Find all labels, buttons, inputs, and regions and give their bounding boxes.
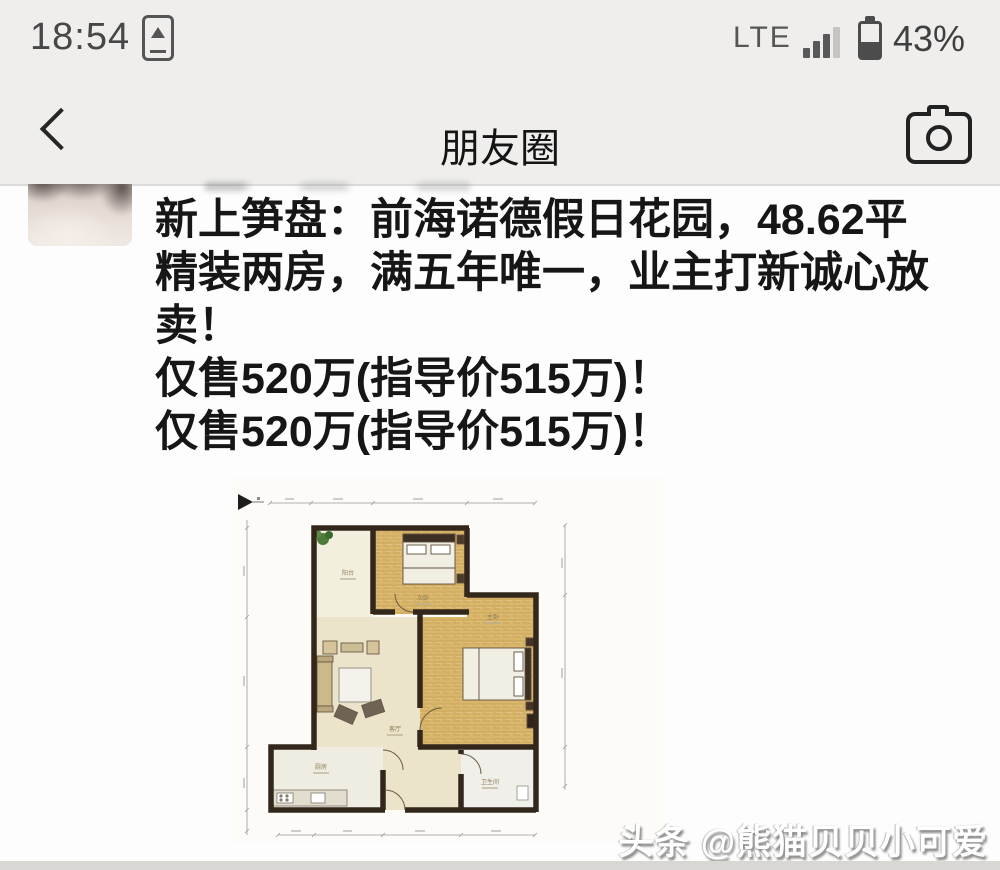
page-title: 朋友圈 <box>0 116 1000 174</box>
room-label-bathroom: 卫生间 <box>481 778 499 786</box>
bathroom-fixture <box>517 786 528 800</box>
north-arrow-icon <box>238 494 264 510</box>
screen-capture-icon <box>142 15 174 61</box>
wechat-moments-screenshot: 18:54 LTE 43% 朋友圈 新上笋盘：前海诺德假日花园，48.62平 精… <box>0 0 1000 870</box>
status-time: 18:54 <box>30 16 130 59</box>
icon-base-line <box>150 50 166 53</box>
post-text-line: 精装两房，满五年唯一，业主打新诚心放 <box>155 247 965 300</box>
cropped-username-smudge <box>205 182 470 191</box>
bedroom2-bed <box>403 534 464 584</box>
avatar-image <box>28 184 132 246</box>
kitchen-counter <box>273 790 347 806</box>
battery-percent-label: 43% <box>893 18 965 60</box>
post-text-line: 仅售520万(指导价515万)！ <box>155 406 965 459</box>
camera-lens-icon <box>926 125 952 151</box>
post-text-line: 卖！ <box>155 300 965 353</box>
room-label-living: 客厅 <box>389 725 401 733</box>
floor-plan-image[interactable]: 阳台 次卧 主卧 客厅 厨房 卫生间 <box>233 478 663 842</box>
camera-bump <box>927 105 949 116</box>
room-label-master: 主卧 <box>487 613 499 621</box>
battery-icon <box>858 16 882 60</box>
triangle-glyph <box>151 27 165 38</box>
signal-strength-icon <box>803 26 845 58</box>
bottom-strip <box>0 861 1000 870</box>
post-text-line: 新上笋盘：前海诺德假日花园，48.62平 <box>155 194 965 247</box>
post-text: 新上笋盘：前海诺德假日花园，48.62平 精装两房，满五年唯一，业主打新诚心放 … <box>155 194 965 459</box>
camera-icon[interactable] <box>906 112 972 164</box>
room-label-balcony: 阳台 <box>342 569 354 577</box>
post-text-line: 仅售520万(指导价515万)！ <box>155 353 965 406</box>
network-type-label: LTE <box>733 21 792 55</box>
room-label-bedroom2: 次卧 <box>417 594 429 602</box>
hallway-floor <box>383 745 461 810</box>
room-label-kitchen: 厨房 <box>315 763 327 771</box>
avatar[interactable] <box>28 184 132 246</box>
watermark: 头条 @熊猫贝贝小可爱 <box>618 814 988 865</box>
battery-fill <box>861 42 879 57</box>
